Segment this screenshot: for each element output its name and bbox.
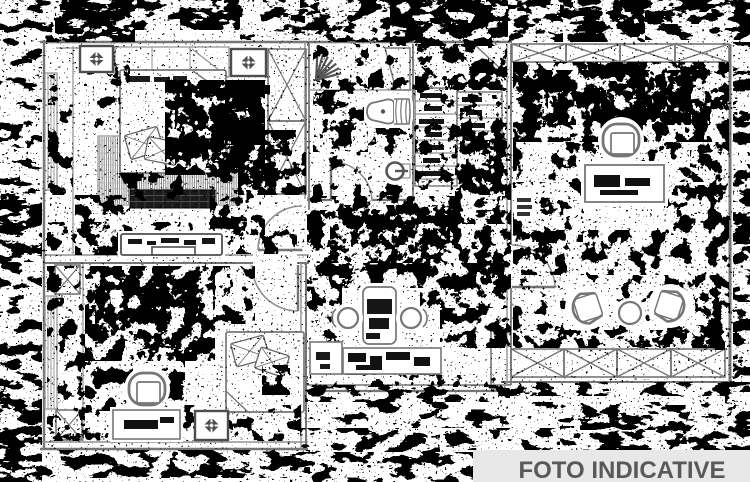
svg-text:FOTO INDICATIVE: FOTO INDICATIVE	[518, 457, 725, 482]
